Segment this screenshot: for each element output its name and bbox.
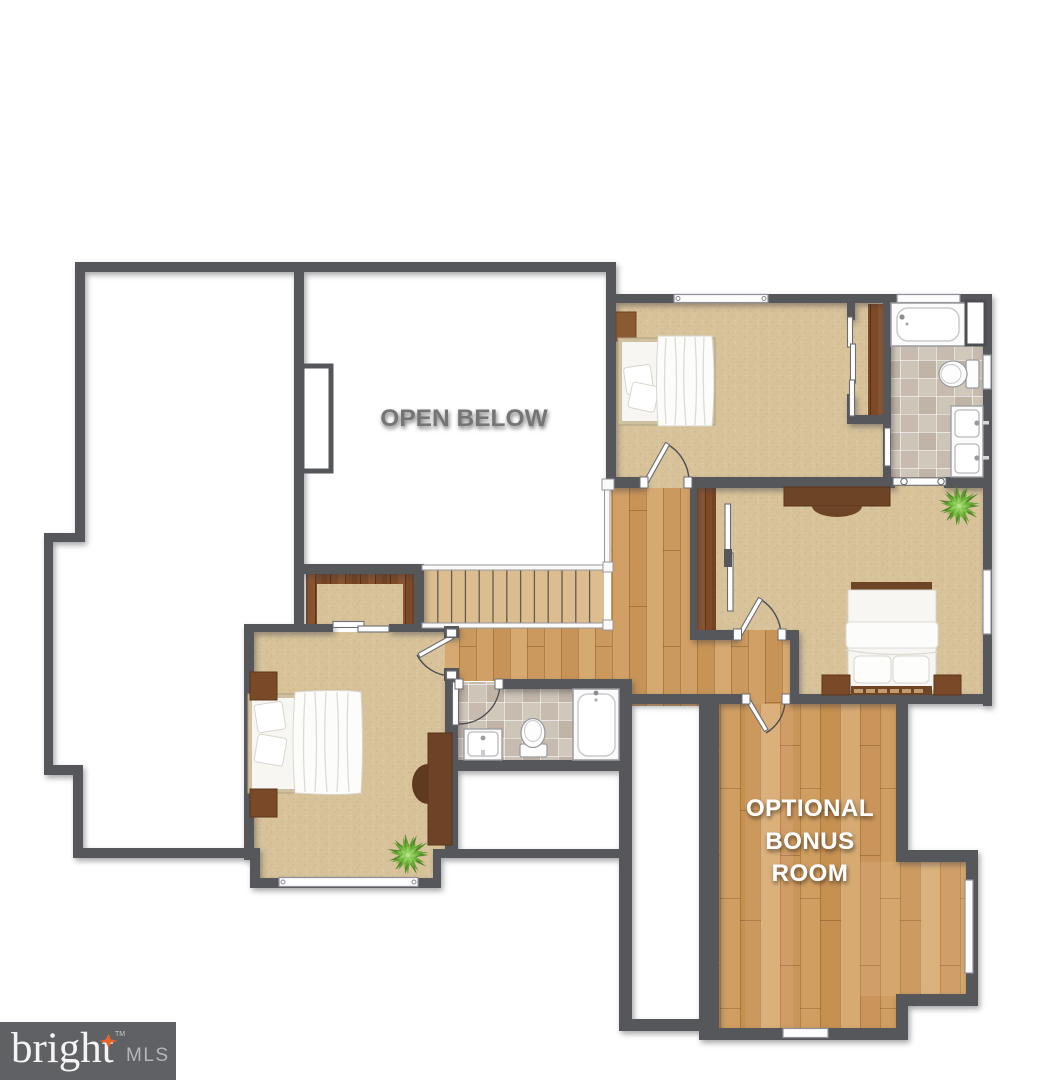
svg-text:TM: TM [115, 1031, 125, 1038]
svg-text:MLS: MLS [126, 1045, 170, 1066]
svg-text:OPEN BELOW: OPEN BELOW [380, 405, 548, 432]
svg-text:ROOM: ROOM [772, 860, 849, 887]
svg-text:OPTIONAL: OPTIONAL [746, 795, 874, 822]
svg-text:BONUS: BONUS [765, 828, 854, 855]
svg-text:bright: bright [11, 1025, 114, 1072]
